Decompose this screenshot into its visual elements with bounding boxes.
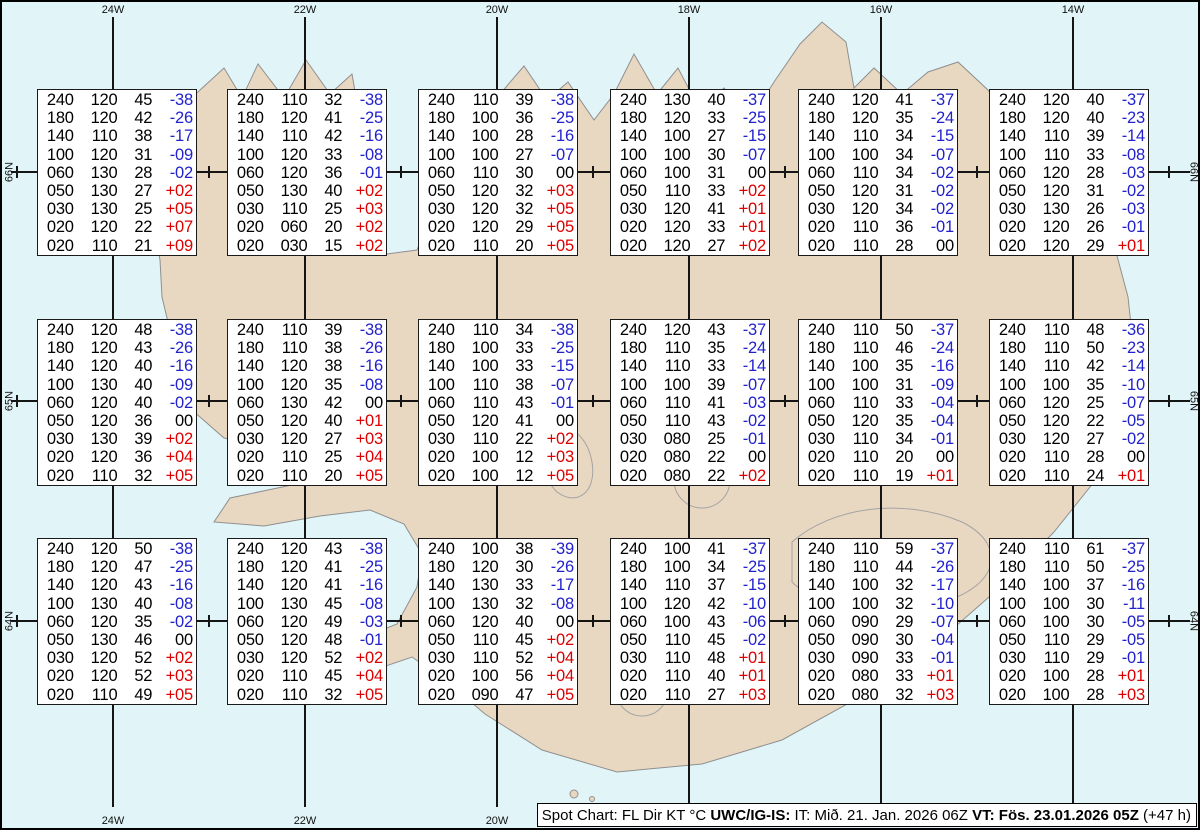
- wind-direction-value: 120: [264, 164, 308, 182]
- caption-text-bold: VT: Fös. 23.01.2026 05Z: [972, 807, 1139, 824]
- temperature-value: -02: [1104, 430, 1145, 448]
- spot-table-row: 10012031-09: [41, 146, 193, 164]
- spot-table-row: 18010033-25: [422, 339, 574, 357]
- wind-speed-value: 32: [308, 686, 343, 704]
- graticule-cross-icon: [203, 400, 215, 402]
- wind-direction-value: 130: [455, 595, 499, 613]
- temperature-value: 00: [533, 164, 574, 182]
- flight-level-value: 180: [993, 558, 1026, 576]
- flight-level-value: 180: [231, 109, 264, 127]
- spot-table: 24012048-3818012043-2614012040-161001304…: [37, 319, 197, 486]
- flight-level-value: 140: [41, 127, 74, 145]
- flight-level-value: 140: [231, 127, 264, 145]
- spot-table: 24012045-3818012042-2614011038-171001203…: [37, 89, 197, 256]
- wind-speed-value: 42: [1070, 357, 1105, 375]
- temperature-value: -38: [342, 540, 383, 558]
- temperature-value: +04: [152, 448, 193, 466]
- wind-direction-value: 100: [1026, 576, 1070, 594]
- flight-level-value: 050: [231, 412, 264, 430]
- temperature-value: 00: [342, 394, 383, 412]
- wind-speed-value: 43: [691, 412, 726, 430]
- wind-direction-value: 090: [455, 686, 499, 704]
- temperature-value: -09: [913, 376, 954, 394]
- flight-level-value: 020: [993, 667, 1026, 685]
- wind-speed-value: 22: [691, 448, 726, 466]
- lon-label-top: 20W: [486, 4, 509, 16]
- wind-direction-value: 090: [835, 631, 879, 649]
- flight-level-value: 030: [41, 200, 74, 218]
- wind-direction-value: 110: [835, 394, 879, 412]
- temperature-value: -01: [1104, 218, 1145, 236]
- wind-speed-value: 27: [308, 430, 343, 448]
- flight-level-value: 240: [614, 540, 647, 558]
- flight-level-value: 240: [614, 321, 647, 339]
- spot-table-row: 02011019+01: [802, 467, 954, 485]
- flight-level-value: 050: [41, 631, 74, 649]
- flight-level-value: 020: [422, 467, 455, 485]
- wind-direction-value: 120: [74, 613, 118, 631]
- wind-direction-value: 110: [74, 237, 118, 255]
- flight-level-value: 020: [802, 667, 835, 685]
- temperature-value: -02: [152, 394, 193, 412]
- lon-label-top: 22W: [294, 4, 317, 16]
- spot-table-row: 0501203600: [41, 412, 193, 430]
- wind-direction-value: 110: [455, 91, 499, 109]
- temperature-value: -16: [342, 357, 383, 375]
- spot-table-row: 24012050-38: [41, 540, 193, 558]
- temperature-value: -02: [152, 613, 193, 631]
- temperature-value: -01: [913, 649, 954, 667]
- wind-speed-value: 39: [118, 430, 153, 448]
- island-vestmannaeyjar: [570, 790, 578, 798]
- flight-level-value: 020: [614, 667, 647, 685]
- flight-level-value: 100: [802, 595, 835, 613]
- wind-speed-value: 32: [308, 91, 343, 109]
- wind-direction-value: 130: [74, 631, 118, 649]
- flight-level-value: 100: [993, 376, 1026, 394]
- temperature-value: +05: [533, 218, 574, 236]
- temperature-value: -09: [152, 376, 193, 394]
- wind-speed-value: 41: [691, 394, 726, 412]
- flight-level-value: 140: [41, 357, 74, 375]
- flight-level-value: 030: [422, 200, 455, 218]
- flight-level-value: 050: [993, 631, 1026, 649]
- wind-speed-value: 32: [879, 576, 914, 594]
- wind-direction-value: 120: [264, 649, 308, 667]
- flight-level-value: 050: [802, 412, 835, 430]
- flight-level-value: 180: [41, 339, 74, 357]
- spot-table-row: 14010035-16: [802, 357, 954, 375]
- spot-table-row: 05011045+02: [422, 631, 574, 649]
- temperature-value: +05: [342, 686, 383, 704]
- spot-table-row: 02011021+09: [41, 237, 193, 255]
- caption-text-bold: UWC/IG-IS:: [710, 807, 790, 824]
- wind-direction-value: 110: [455, 649, 499, 667]
- temperature-value: -38: [342, 91, 383, 109]
- wind-speed-value: 20: [499, 237, 534, 255]
- spot-table-row: 0601304200: [231, 394, 383, 412]
- wind-direction-value: 110: [835, 237, 879, 255]
- spot-table-row: 0201102800: [993, 448, 1145, 466]
- spot-table-row: 0201102000: [802, 448, 954, 466]
- spot-table-row: 18012042-26: [41, 109, 193, 127]
- temperature-value: +03: [152, 667, 193, 685]
- flight-level-value: 030: [422, 430, 455, 448]
- temperature-value: -01: [342, 164, 383, 182]
- temperature-value: -17: [152, 127, 193, 145]
- flight-level-value: 030: [422, 649, 455, 667]
- wind-speed-value: 31: [1070, 182, 1105, 200]
- temperature-value: -23: [1104, 109, 1145, 127]
- flight-level-value: 180: [993, 339, 1026, 357]
- temperature-value: -24: [725, 339, 766, 357]
- wind-speed-value: 34: [879, 200, 914, 218]
- wind-direction-value: 110: [647, 667, 691, 685]
- wind-direction-value: 110: [1026, 357, 1070, 375]
- flight-level-value: 060: [614, 613, 647, 631]
- temperature-value: +02: [342, 237, 383, 255]
- wind-speed-value: 25: [308, 200, 343, 218]
- wind-speed-value: 33: [691, 182, 726, 200]
- wind-speed-value: 27: [118, 182, 153, 200]
- wind-direction-value: 110: [1026, 649, 1070, 667]
- flight-level-value: 030: [231, 200, 264, 218]
- spot-table-row: 14012040-16: [41, 357, 193, 375]
- flight-level-value: 060: [802, 394, 835, 412]
- graticule-cross-icon: [395, 400, 407, 402]
- spot-table-row: 24010038-39: [422, 540, 574, 558]
- flight-level-value: 060: [422, 394, 455, 412]
- temperature-value: -07: [533, 376, 574, 394]
- wind-direction-value: 120: [647, 595, 691, 613]
- wind-direction-value: 110: [1026, 467, 1070, 485]
- wind-direction-value: 120: [647, 321, 691, 339]
- wind-speed-value: 29: [499, 218, 534, 236]
- wind-direction-value: 100: [455, 127, 499, 145]
- temperature-value: -38: [533, 321, 574, 339]
- temperature-value: -08: [533, 595, 574, 613]
- temperature-value: -08: [342, 376, 383, 394]
- flight-level-value: 240: [231, 540, 264, 558]
- wind-speed-value: 41: [308, 576, 343, 594]
- temperature-value: -02: [1104, 182, 1145, 200]
- temperature-value: -37: [913, 540, 954, 558]
- spot-table-row: 03012041+01: [614, 200, 766, 218]
- temperature-value: -10: [725, 595, 766, 613]
- temperature-value: -02: [725, 412, 766, 430]
- wind-direction-value: 110: [455, 164, 499, 182]
- wind-speed-value: 12: [499, 467, 534, 485]
- temperature-value: -07: [913, 146, 954, 164]
- spot-table: 24011048-3618011050-2314011042-141001003…: [989, 319, 1149, 486]
- spot-table-row: 03012027+03: [231, 430, 383, 448]
- temperature-value: +01: [1104, 667, 1145, 685]
- spot-table-row: 14011038-17: [41, 127, 193, 145]
- flight-level-value: 180: [41, 109, 74, 127]
- wind-direction-value: 080: [647, 467, 691, 485]
- wind-direction-value: 120: [74, 109, 118, 127]
- wind-speed-value: 34: [499, 321, 534, 339]
- spot-table-row: 05012022-05: [993, 412, 1145, 430]
- spot-table-row: 10013040-09: [41, 376, 193, 394]
- flight-level-value: 060: [422, 164, 455, 182]
- spot-table-row: 03012052+02: [231, 649, 383, 667]
- flight-level-value: 180: [231, 558, 264, 576]
- wind-direction-value: 100: [455, 467, 499, 485]
- temperature-value: 00: [913, 448, 954, 466]
- spot-table-row: 02003015+02: [231, 237, 383, 255]
- spot-table-row: 0200802200: [614, 448, 766, 466]
- graticule-cross-icon: [1163, 171, 1175, 173]
- wind-direction-value: 120: [264, 412, 308, 430]
- wind-speed-value: 33: [499, 339, 534, 357]
- spot-table-row: 24012041-37: [802, 91, 954, 109]
- flight-level-value: 140: [993, 127, 1026, 145]
- flight-level-value: 030: [614, 649, 647, 667]
- flight-level-value: 140: [422, 357, 455, 375]
- wind-direction-value: 110: [264, 321, 308, 339]
- spot-table-row: 06010043-06: [614, 613, 766, 631]
- spot-table-row: 05011045-02: [614, 631, 766, 649]
- temperature-value: +02: [533, 430, 574, 448]
- temperature-value: -16: [152, 357, 193, 375]
- wind-direction-value: 120: [264, 631, 308, 649]
- temperature-value: -37: [1104, 91, 1145, 109]
- temperature-value: +05: [533, 686, 574, 704]
- flight-level-value: 020: [231, 467, 264, 485]
- temperature-value: -02: [152, 164, 193, 182]
- flight-level-value: 100: [41, 376, 74, 394]
- wind-speed-value: 40: [1070, 91, 1105, 109]
- flight-level-value: 180: [614, 558, 647, 576]
- wind-speed-value: 48: [691, 649, 726, 667]
- wind-speed-value: 26: [1070, 218, 1105, 236]
- wind-speed-value: 28: [1070, 686, 1105, 704]
- flight-level-value: 030: [41, 430, 74, 448]
- wind-direction-value: 120: [264, 613, 308, 631]
- flight-level-value: 020: [422, 686, 455, 704]
- wind-direction-value: 110: [647, 339, 691, 357]
- temperature-value: -03: [1104, 200, 1145, 218]
- spot-table-row: 02011025+04: [231, 448, 383, 466]
- wind-direction-value: 100: [1026, 595, 1070, 613]
- spot-table-row: 03011029-01: [993, 649, 1145, 667]
- temperature-value: -01: [913, 218, 954, 236]
- flight-level-value: 020: [231, 237, 264, 255]
- flight-level-value: 050: [41, 182, 74, 200]
- spot-table-row: 10010031-09: [802, 376, 954, 394]
- temperature-value: +01: [342, 412, 383, 430]
- graticule-cross-icon: [779, 400, 791, 402]
- temperature-value: +05: [533, 237, 574, 255]
- wind-speed-value: 59: [879, 540, 914, 558]
- spot-table-row: 02011036-01: [802, 218, 954, 236]
- temperature-value: +04: [342, 448, 383, 466]
- wind-direction-value: 110: [835, 448, 879, 466]
- wind-direction-value: 120: [647, 200, 691, 218]
- flight-level-value: 020: [614, 448, 647, 466]
- flight-level-value: 060: [802, 613, 835, 631]
- spot-table-row: 03008025-01: [614, 430, 766, 448]
- lat-label-left: 66N: [5, 162, 16, 182]
- wind-direction-value: 120: [74, 649, 118, 667]
- spot-table-row: 02011040+01: [614, 667, 766, 685]
- temperature-value: -25: [725, 109, 766, 127]
- spot-table: 24012043-3818012041-2514012041-161001304…: [227, 538, 387, 705]
- flight-level-value: 240: [802, 91, 835, 109]
- graticule-cross-icon: [971, 400, 983, 402]
- wind-speed-value: 38: [308, 357, 343, 375]
- lat-label-right: 64N: [1188, 611, 1199, 631]
- temperature-value: +04: [342, 667, 383, 685]
- wind-direction-value: 120: [835, 200, 879, 218]
- spot-table: 24012043-3718011035-2414011033-141001003…: [610, 319, 770, 486]
- wind-direction-value: 130: [74, 430, 118, 448]
- wind-direction-value: 120: [74, 576, 118, 594]
- wind-speed-value: 33: [691, 218, 726, 236]
- wind-speed-value: 40: [691, 91, 726, 109]
- spot-table-row: 03009033-01: [802, 649, 954, 667]
- wind-direction-value: 120: [1026, 182, 1070, 200]
- temperature-value: -07: [1104, 394, 1145, 412]
- spot-table-row: 18012040-23: [993, 109, 1145, 127]
- temperature-value: +03: [913, 686, 954, 704]
- spot-table-row: 06011043-01: [422, 394, 574, 412]
- temperature-value: +02: [342, 218, 383, 236]
- temperature-value: +05: [152, 686, 193, 704]
- wind-speed-value: 20: [879, 448, 914, 466]
- wind-direction-value: 100: [647, 146, 691, 164]
- spot-table-row: 03012034-02: [802, 200, 954, 218]
- spot-table: 24012040-3718012040-2314011039-141001103…: [989, 89, 1149, 256]
- flight-level-value: 020: [993, 686, 1026, 704]
- flight-level-value: 140: [41, 576, 74, 594]
- spot-table-row: 05012031-02: [802, 182, 954, 200]
- flight-level-value: 020: [802, 448, 835, 466]
- flight-level-value: 100: [41, 595, 74, 613]
- flight-level-value: 140: [993, 576, 1026, 594]
- spot-table-row: 24012043-38: [231, 540, 383, 558]
- wind-direction-value: 120: [835, 91, 879, 109]
- temperature-value: 00: [152, 631, 193, 649]
- temperature-value: -01: [1104, 649, 1145, 667]
- temperature-value: -26: [152, 339, 193, 357]
- flight-level-value: 020: [993, 448, 1026, 466]
- spot-table-row: 02010056+04: [422, 667, 574, 685]
- spot-table-row: 14012038-16: [231, 357, 383, 375]
- wind-direction-value: 080: [647, 430, 691, 448]
- wind-direction-value: 120: [455, 200, 499, 218]
- caption-text: IT: Mið. 21. Jan. 2026 06Z: [790, 807, 972, 824]
- spot-table-row: 10012033-08: [231, 146, 383, 164]
- wind-speed-value: 35: [879, 357, 914, 375]
- wind-speed-value: 41: [308, 109, 343, 127]
- flight-level-value: 140: [993, 357, 1026, 375]
- spot-table-row: 18011044-26: [802, 558, 954, 576]
- temperature-value: +01: [1104, 237, 1145, 255]
- wind-speed-value: 20: [308, 218, 343, 236]
- wind-direction-value: 120: [1026, 164, 1070, 182]
- temperature-value: -38: [152, 540, 193, 558]
- wind-direction-value: 130: [264, 182, 308, 200]
- temperature-value: -16: [913, 357, 954, 375]
- spot-table-row: 0501204100: [422, 412, 574, 430]
- wind-speed-value: 22: [499, 430, 534, 448]
- wind-direction-value: 110: [264, 339, 308, 357]
- temperature-value: -25: [1104, 558, 1145, 576]
- temperature-value: +05: [152, 200, 193, 218]
- flight-level-value: 030: [614, 200, 647, 218]
- lat-label-right: 65N: [1188, 391, 1199, 411]
- wind-speed-value: 61: [1070, 540, 1105, 558]
- wind-direction-value: 080: [835, 667, 879, 685]
- wind-speed-value: 43: [118, 576, 153, 594]
- wind-direction-value: 110: [455, 394, 499, 412]
- wind-direction-value: 110: [455, 321, 499, 339]
- wind-speed-value: 40: [308, 182, 343, 200]
- spot-table-row: 0601003100: [614, 164, 766, 182]
- wind-speed-value: 25: [691, 430, 726, 448]
- wind-speed-value: 48: [1070, 321, 1105, 339]
- spot-table-row: 06012028-03: [993, 164, 1145, 182]
- temperature-value: -02: [913, 182, 954, 200]
- wind-direction-value: 120: [835, 109, 879, 127]
- flight-level-value: 020: [41, 667, 74, 685]
- wind-speed-value: 28: [879, 237, 914, 255]
- wind-direction-value: 110: [264, 667, 308, 685]
- wind-direction-value: 110: [1026, 321, 1070, 339]
- spot-table-row: 05012040+01: [231, 412, 383, 430]
- temperature-value: -07: [725, 146, 766, 164]
- wind-speed-value: 38: [499, 376, 534, 394]
- wind-speed-value: 33: [879, 649, 914, 667]
- spot-table-row: 06011033-04: [802, 394, 954, 412]
- spot-table-row: 02010012+03: [422, 448, 574, 466]
- wind-speed-value: 41: [308, 558, 343, 576]
- spot-table-row: 02011020+05: [231, 467, 383, 485]
- temperature-value: -01: [725, 430, 766, 448]
- lon-label-bottom: 20W: [486, 815, 509, 827]
- wind-direction-value: 110: [455, 631, 499, 649]
- wind-speed-value: 25: [1070, 394, 1105, 412]
- wind-direction-value: 120: [1026, 237, 1070, 255]
- temperature-value: -37: [725, 91, 766, 109]
- lon-label-top: 14W: [1062, 4, 1085, 16]
- wind-direction-value: 120: [1026, 218, 1070, 236]
- graticule-cross-icon: [203, 620, 215, 622]
- wind-direction-value: 100: [647, 164, 691, 182]
- wind-direction-value: 120: [74, 218, 118, 236]
- flight-level-value: 020: [614, 467, 647, 485]
- wind-speed-value: 35: [118, 613, 153, 631]
- wind-speed-value: 31: [118, 146, 153, 164]
- flight-level-value: 240: [231, 321, 264, 339]
- wind-speed-value: 50: [879, 321, 914, 339]
- temperature-value: -37: [725, 321, 766, 339]
- flight-level-value: 050: [614, 412, 647, 430]
- wind-direction-value: 120: [264, 146, 308, 164]
- temperature-value: +05: [342, 467, 383, 485]
- wind-speed-value: 30: [691, 146, 726, 164]
- temperature-value: -10: [1104, 376, 1145, 394]
- flight-level-value: 020: [802, 237, 835, 255]
- flight-level-value: 100: [231, 376, 264, 394]
- spot-table-row: 14011037-15: [614, 576, 766, 594]
- flight-level-value: 060: [993, 613, 1026, 631]
- temperature-value: -15: [913, 127, 954, 145]
- spot-table-row: 24011059-37: [802, 540, 954, 558]
- spot-table-row: 02012029+05: [422, 218, 574, 236]
